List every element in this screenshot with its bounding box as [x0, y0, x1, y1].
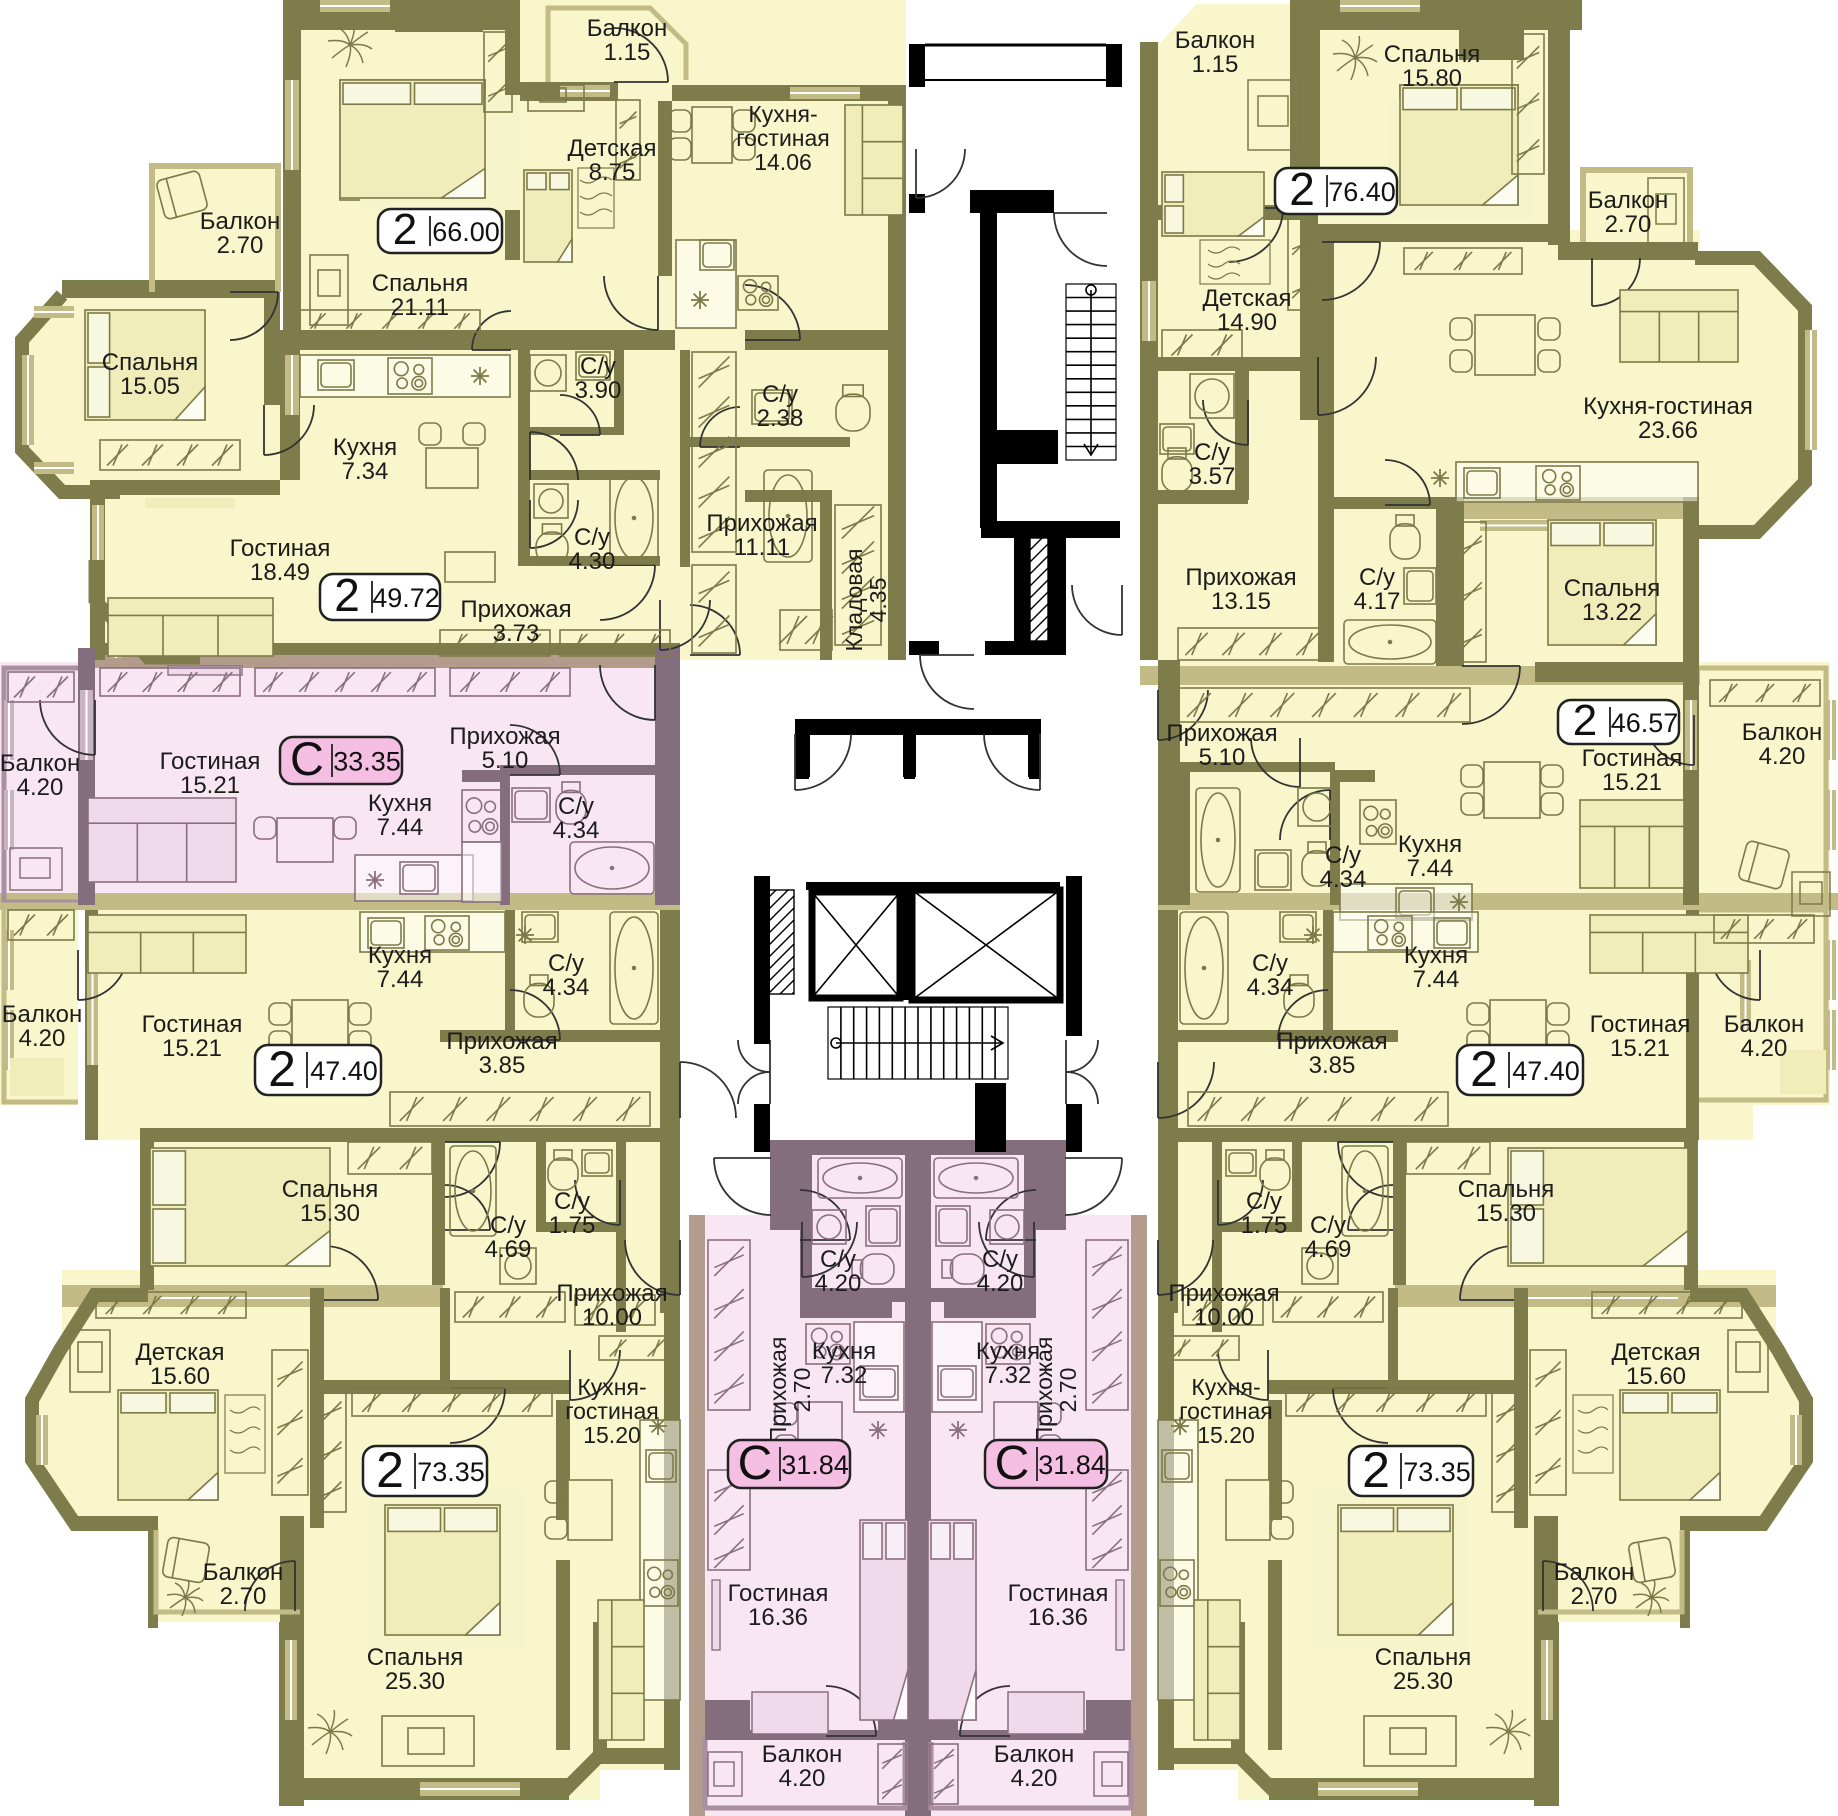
- svg-text:2: 2: [376, 1442, 404, 1498]
- svg-text:С/у: С/у: [982, 1246, 1018, 1273]
- svg-text:Детская: Детская: [136, 1339, 225, 1366]
- svg-text:Балкон: Балкон: [203, 1559, 283, 1586]
- svg-text:18.49: 18.49: [250, 559, 310, 586]
- svg-text:Детская: Детская: [568, 135, 657, 162]
- svg-text:33.35: 33.35: [333, 747, 401, 777]
- svg-text:Балкон: Балкон: [0, 750, 80, 777]
- svg-text:Спальня: Спальня: [1384, 41, 1480, 68]
- svg-text:Кладовая: Кладовая: [841, 548, 867, 651]
- svg-text:15.80: 15.80: [1402, 65, 1462, 92]
- svg-text:С/у: С/у: [554, 1188, 590, 1215]
- svg-text:2.70: 2.70: [217, 232, 264, 259]
- svg-text:3.85: 3.85: [1309, 1052, 1356, 1079]
- svg-text:Гостиная: Гостиная: [1008, 1580, 1109, 1607]
- svg-text:С/у: С/у: [1325, 842, 1361, 869]
- svg-text:2.70: 2.70: [789, 1368, 815, 1413]
- svg-text:Гостиная: Гостиная: [230, 535, 331, 562]
- svg-text:14.06: 14.06: [754, 149, 812, 175]
- svg-text:Балкон: Балкон: [1175, 27, 1255, 54]
- svg-text:Балкон: Балкон: [1724, 1011, 1804, 1038]
- svg-text:2.70: 2.70: [1055, 1368, 1081, 1413]
- svg-text:Прихожая: Прихожая: [556, 1280, 667, 1307]
- svg-text:Гостиная: Гостиная: [728, 1580, 829, 1607]
- svg-text:7.34: 7.34: [342, 458, 389, 485]
- svg-text:Спальня: Спальня: [1458, 1176, 1554, 1203]
- svg-text:С/у: С/у: [820, 1246, 856, 1273]
- svg-text:15.21: 15.21: [162, 1035, 222, 1062]
- svg-text:25.30: 25.30: [1393, 1668, 1453, 1695]
- svg-text:С/у: С/у: [548, 950, 584, 977]
- svg-text:4.34: 4.34: [1247, 974, 1294, 1001]
- svg-text:С/у: С/у: [580, 353, 616, 380]
- svg-text:2.70: 2.70: [1571, 1583, 1618, 1610]
- svg-text:21.11: 21.11: [391, 294, 449, 321]
- svg-text:11.11: 11.11: [734, 534, 791, 561]
- svg-text:Прихожая: Прихожая: [1168, 1280, 1279, 1307]
- svg-text:Спальня: Спальня: [367, 1644, 463, 1671]
- svg-text:2: 2: [1470, 1041, 1498, 1097]
- svg-text:С/у: С/у: [762, 381, 798, 408]
- svg-text:Спальня: Спальня: [372, 270, 468, 297]
- svg-text:Прихожая: Прихожая: [1276, 1028, 1387, 1055]
- svg-text:гостиная: гостиная: [1179, 1398, 1273, 1424]
- svg-text:С/у: С/у: [1252, 950, 1288, 977]
- svg-text:7.32: 7.32: [985, 1362, 1032, 1389]
- svg-text:15.21: 15.21: [1610, 1035, 1670, 1062]
- svg-text:4.34: 4.34: [543, 974, 590, 1001]
- svg-text:15.60: 15.60: [1626, 1363, 1686, 1390]
- svg-text:25.30: 25.30: [385, 1668, 445, 1695]
- svg-text:2.38: 2.38: [757, 405, 804, 432]
- svg-text:4.34: 4.34: [1320, 866, 1367, 893]
- svg-text:3.90: 3.90: [575, 377, 622, 404]
- svg-text:3.85: 3.85: [479, 1052, 526, 1079]
- svg-text:Детская: Детская: [1203, 285, 1292, 312]
- svg-text:Балкон: Балкон: [1742, 719, 1822, 746]
- svg-text:Балкон: Балкон: [994, 1741, 1074, 1768]
- svg-text:Прихожая: Прихожая: [765, 1337, 791, 1444]
- svg-text:73.35: 73.35: [1403, 1457, 1471, 1487]
- svg-text:7.44: 7.44: [1413, 966, 1460, 993]
- svg-text:Кухня: Кухня: [368, 942, 432, 969]
- svg-text:Кухня: Кухня: [368, 790, 432, 817]
- svg-text:Кухня-: Кухня-: [577, 1374, 646, 1400]
- svg-text:31.84: 31.84: [781, 1450, 849, 1480]
- svg-text:4.20: 4.20: [1741, 1035, 1788, 1062]
- svg-text:Спальня: Спальня: [1564, 575, 1660, 602]
- svg-text:3.57: 3.57: [1189, 463, 1236, 490]
- svg-text:15.60: 15.60: [150, 1363, 210, 1390]
- svg-text:4.20: 4.20: [815, 1270, 862, 1297]
- svg-text:73.35: 73.35: [417, 1457, 485, 1487]
- svg-text:4.20: 4.20: [19, 1025, 66, 1052]
- svg-text:Прихожая: Прихожая: [446, 1028, 557, 1055]
- svg-text:Балкон: Балкон: [762, 1741, 842, 1768]
- svg-text:1.15: 1.15: [1192, 51, 1239, 78]
- svg-text:Прихожая: Прихожая: [1166, 720, 1277, 747]
- svg-text:2: 2: [393, 205, 417, 254]
- svg-text:Гостиная: Гостиная: [1590, 1011, 1691, 1038]
- svg-text:2.70: 2.70: [1605, 211, 1652, 238]
- svg-text:Кухня: Кухня: [1404, 942, 1468, 969]
- svg-text:1.15: 1.15: [604, 39, 651, 66]
- svg-text:Прихожая: Прихожая: [706, 510, 817, 537]
- svg-text:3.73: 3.73: [493, 620, 540, 647]
- svg-text:15.21: 15.21: [1602, 769, 1662, 796]
- svg-text:47.40: 47.40: [1512, 1056, 1580, 1086]
- svg-text:С/у: С/у: [490, 1212, 526, 1239]
- svg-text:С/у: С/у: [1310, 1212, 1346, 1239]
- svg-text:76.40: 76.40: [1328, 177, 1396, 207]
- svg-text:13.22: 13.22: [1582, 599, 1642, 626]
- svg-text:Спальня: Спальня: [102, 349, 198, 376]
- svg-text:Балкон: Балкон: [1554, 1559, 1634, 1586]
- svg-text:15.30: 15.30: [300, 1200, 360, 1227]
- svg-text:Прихожая: Прихожая: [460, 596, 571, 623]
- svg-text:7.32: 7.32: [821, 1362, 868, 1389]
- svg-text:2.70: 2.70: [220, 1583, 267, 1610]
- svg-text:15.20: 15.20: [1197, 1422, 1255, 1448]
- svg-text:С/у: С/у: [1359, 564, 1395, 591]
- svg-text:46.57: 46.57: [1611, 708, 1679, 738]
- svg-text:Спальня: Спальня: [1375, 1644, 1471, 1671]
- svg-text:С: С: [290, 732, 324, 785]
- svg-text:Прихожая: Прихожая: [449, 723, 560, 750]
- svg-text:Балкон: Балкон: [2, 1001, 82, 1028]
- svg-text:10.00: 10.00: [582, 1304, 642, 1331]
- svg-text:2: 2: [1573, 696, 1597, 745]
- svg-text:13.15: 13.15: [1211, 588, 1271, 615]
- svg-text:4.69: 4.69: [485, 1236, 532, 1263]
- svg-text:Детская: Детская: [1612, 1339, 1701, 1366]
- svg-text:4.20: 4.20: [17, 774, 64, 801]
- svg-text:С/у: С/у: [1246, 1188, 1282, 1215]
- svg-text:5.10: 5.10: [1199, 744, 1246, 771]
- svg-text:2: 2: [268, 1041, 296, 1097]
- svg-text:2: 2: [1289, 163, 1315, 215]
- svg-text:Кухня: Кухня: [333, 434, 397, 461]
- svg-text:С: С: [995, 1437, 1030, 1490]
- svg-text:23.66: 23.66: [1638, 417, 1698, 444]
- svg-text:гостиная: гостиная: [736, 125, 830, 151]
- svg-text:16.36: 16.36: [1028, 1604, 1088, 1631]
- svg-text:4.20: 4.20: [1759, 743, 1806, 770]
- svg-text:Спальня: Спальня: [282, 1176, 378, 1203]
- svg-text:47.40: 47.40: [310, 1056, 378, 1086]
- svg-text:Гостиная: Гостиная: [160, 748, 261, 775]
- svg-text:Балкон: Балкон: [587, 15, 667, 42]
- svg-text:4.30: 4.30: [569, 548, 616, 575]
- svg-text:Балкон: Балкон: [200, 208, 280, 235]
- svg-text:4.34: 4.34: [553, 817, 600, 844]
- svg-text:Кухня-: Кухня-: [1191, 1374, 1260, 1400]
- svg-text:Кухня-гостиная: Кухня-гостиная: [1583, 393, 1753, 420]
- svg-text:Прихожая: Прихожая: [1185, 564, 1296, 591]
- svg-text:2: 2: [334, 569, 360, 621]
- svg-text:Балкон: Балкон: [1588, 187, 1668, 214]
- svg-text:Кухня: Кухня: [976, 1338, 1040, 1365]
- svg-text:7.44: 7.44: [377, 814, 424, 841]
- svg-text:С/у: С/у: [1194, 439, 1230, 466]
- svg-text:С: С: [738, 1437, 773, 1490]
- svg-text:Гостиная: Гостиная: [142, 1011, 243, 1038]
- svg-text:Гостиная: Гостиная: [1582, 745, 1683, 772]
- svg-text:Кухня: Кухня: [1398, 831, 1462, 858]
- svg-text:4.69: 4.69: [1305, 1236, 1352, 1263]
- svg-text:5.10: 5.10: [482, 747, 529, 774]
- svg-text:8.75: 8.75: [589, 159, 636, 186]
- svg-text:4.35: 4.35: [865, 578, 891, 623]
- svg-text:2: 2: [1362, 1442, 1390, 1498]
- svg-text:66.00: 66.00: [432, 217, 500, 247]
- svg-text:4.17: 4.17: [1354, 588, 1401, 615]
- svg-text:4.20: 4.20: [977, 1270, 1024, 1297]
- svg-text:гостиная: гостиная: [565, 1398, 659, 1424]
- svg-text:31.84: 31.84: [1038, 1450, 1106, 1480]
- svg-text:С/у: С/у: [558, 793, 594, 820]
- svg-text:С/у: С/у: [574, 524, 610, 551]
- svg-text:14.90: 14.90: [1217, 309, 1277, 336]
- svg-text:15.20: 15.20: [583, 1422, 641, 1448]
- svg-text:1.75: 1.75: [1241, 1212, 1288, 1239]
- svg-text:Кухня: Кухня: [812, 1338, 876, 1365]
- svg-text:10.00: 10.00: [1194, 1304, 1254, 1331]
- svg-text:4.20: 4.20: [1011, 1765, 1058, 1792]
- svg-text:49.72: 49.72: [372, 583, 440, 613]
- svg-text:15.21: 15.21: [180, 772, 240, 799]
- svg-text:1.75: 1.75: [549, 1212, 596, 1239]
- svg-text:7.44: 7.44: [377, 966, 424, 993]
- svg-text:Кухня-: Кухня-: [748, 101, 817, 127]
- svg-text:16.36: 16.36: [748, 1604, 808, 1631]
- svg-text:7.44: 7.44: [1407, 855, 1454, 882]
- svg-text:15.05: 15.05: [120, 373, 180, 400]
- svg-text:15.30: 15.30: [1476, 1200, 1536, 1227]
- svg-text:4.20: 4.20: [779, 1765, 826, 1792]
